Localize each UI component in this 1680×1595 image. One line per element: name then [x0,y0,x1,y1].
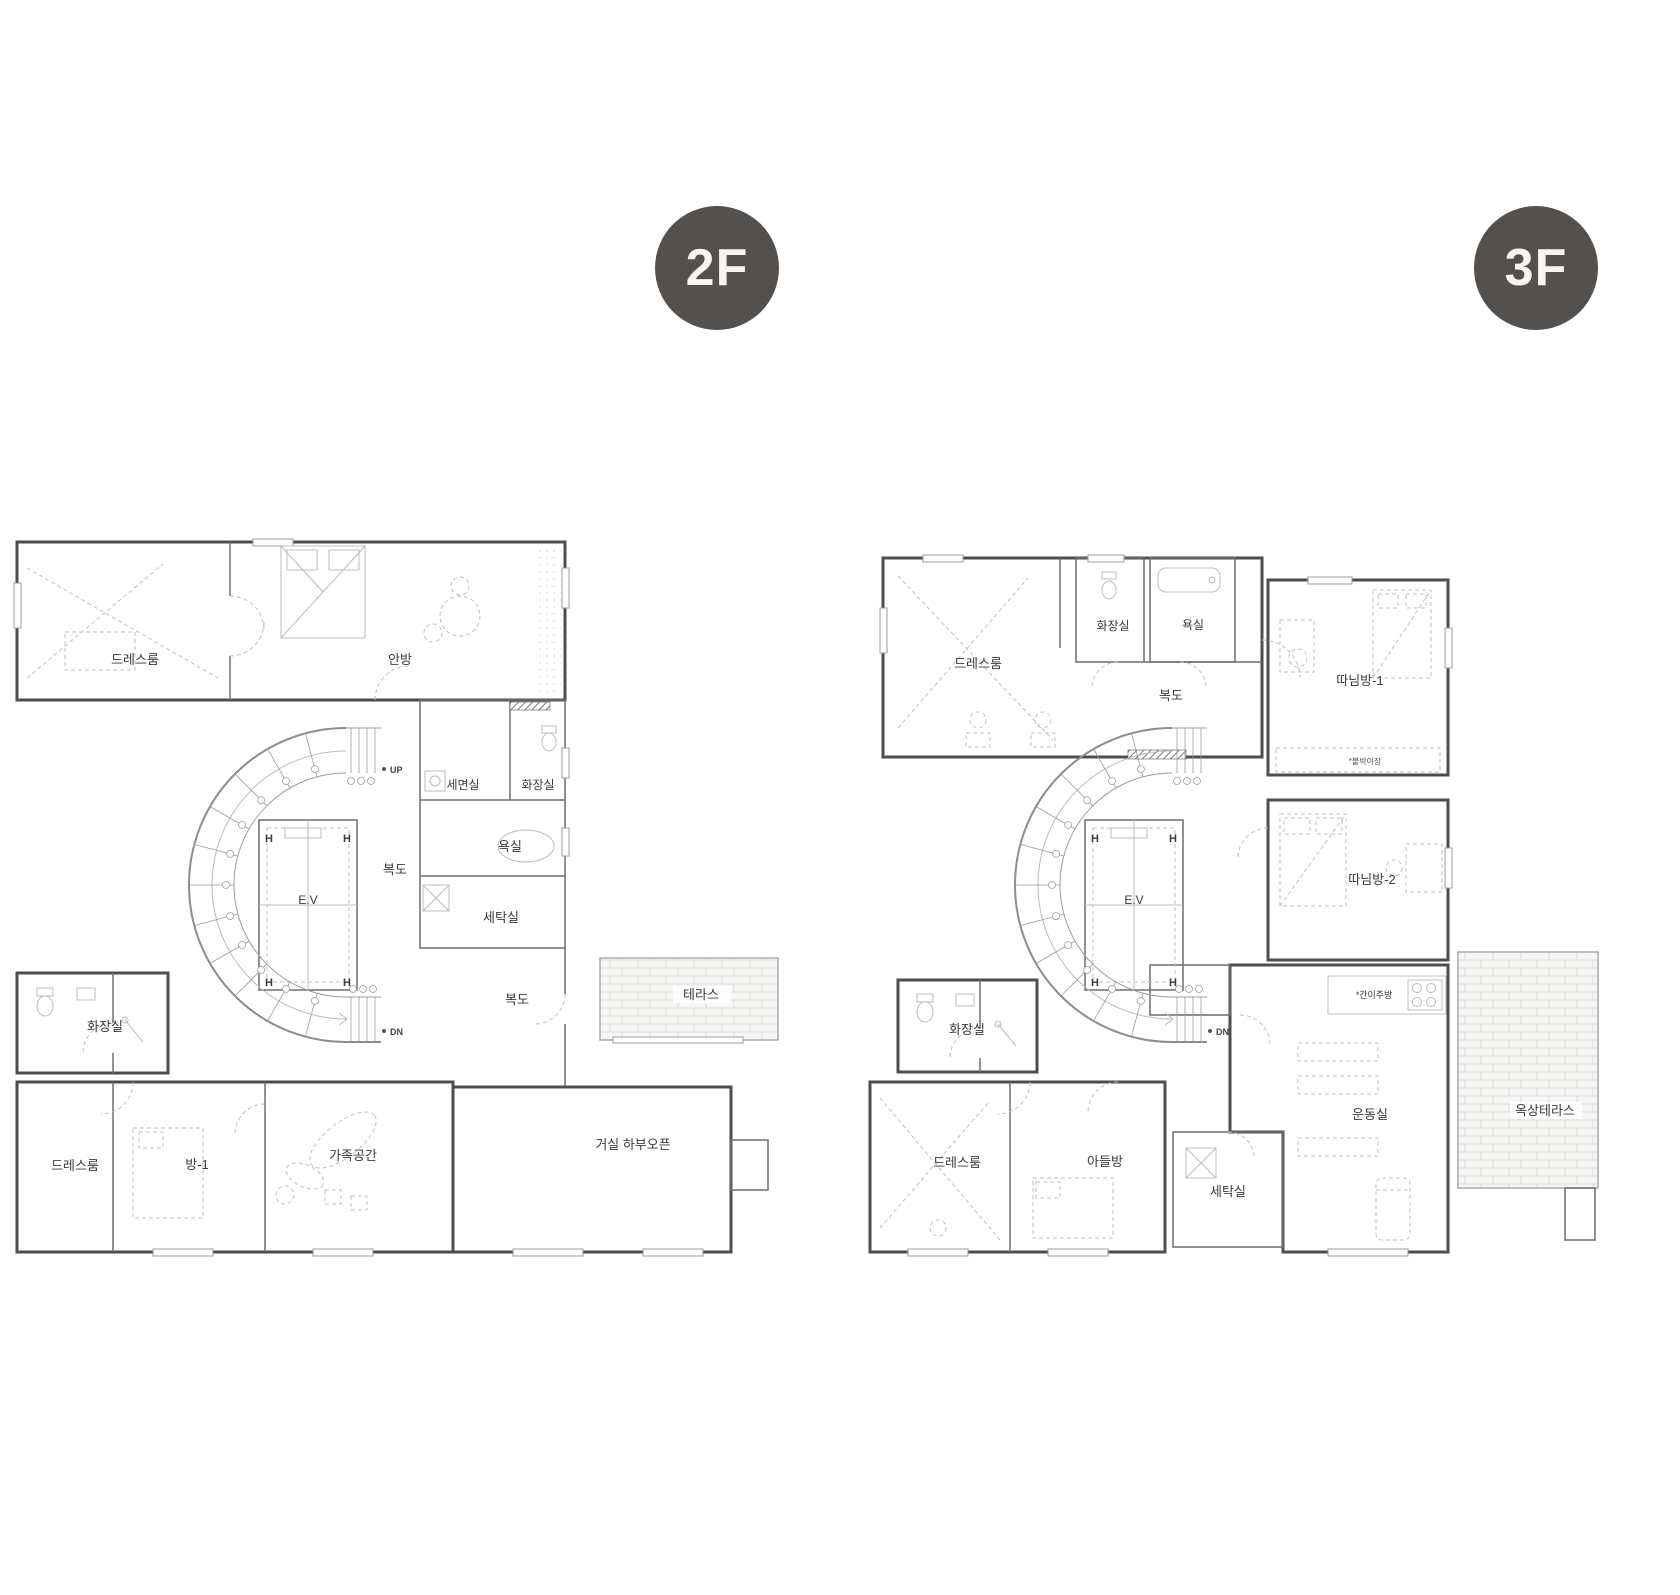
bed-glyph [1280,814,1346,906]
toilet-glyph [1102,572,1116,599]
toilet-glyph [542,726,556,751]
dn-marker-dot [1208,1029,1212,1033]
dotted-floor-strip [537,548,561,696]
room-label-family-space: 가족공간 [329,1148,377,1163]
floor-badge-3f-label: 3F [1505,238,1568,298]
room-label-living-open: 거실 하부오픈 [595,1137,670,1152]
bed-glyph [281,546,365,638]
room-label-corridor: 복도 [1159,688,1183,703]
up-marker: UP [390,765,403,775]
up-marker-dot [382,767,386,771]
room-label-son-room: 아들방 [1087,1154,1123,1169]
ev-corner-mark: H [1091,977,1099,989]
room-label-toilet-upper: 화장실 [521,778,554,792]
room-label-dressroom-lower: 드레스룸 [933,1155,981,1170]
floorplan-2f: H H H H [13,528,783,1258]
washer-glyph [423,885,449,911]
note-kitchenette: *간이주방 [1356,990,1393,1000]
dn-marker-dot [382,1029,386,1033]
door-arcs [83,596,565,1134]
sink-glyph [425,771,445,791]
ev-corner-mark: H [1169,833,1177,845]
floorplan-2f-drawing: H H H H [13,528,783,1258]
room-label-daughter-room2: 따님방-2 [1348,872,1395,887]
stove-glyph [1408,980,1442,1010]
table-glyph [424,577,480,642]
room-labels-2f: 드레스룸 안방 UP 세면실 화장실 욕실 복도 E.V 세탁실 복도 테라스 … [51,652,731,1173]
room-label-laundry: 세탁실 [1210,1184,1246,1199]
stair-step-numbers [223,766,377,1005]
room-label-bathroom: 욕실 [1182,618,1204,632]
note-builtin-closet: *붙박이장 [1349,756,1382,766]
room-label-daughter-room1: 따님방-1 [1336,673,1383,688]
room-label-exercise-room: 운동실 [1352,1107,1388,1122]
ev-corner-mark: H [265,833,273,845]
room-label-master-bedroom: 안방 [388,652,412,667]
bed-glyph [1373,590,1431,678]
shower-glyph [995,1021,1016,1046]
room-label-dressroom-upper: 드레스룸 [111,652,159,667]
room-label-elevator: E.V [298,893,317,907]
room-label-toilet-lower: 화장실 [949,1022,985,1037]
floorplan-3f-drawing: H H H H [828,528,1600,1258]
room-label-bathroom: 욕실 [498,839,522,854]
ev-corner-mark: H [343,833,351,845]
ev-corner-mark: H [1091,833,1099,845]
room-label-roof-terrace: 옥상테라스 [1515,1103,1575,1118]
exercise-equipment-glyphs [1298,1043,1410,1240]
floor-badge-2f-label: 2F [686,238,749,298]
room-label-toilet-upper: 화장실 [1096,619,1129,633]
room-label-corridor-mid: 복도 [383,862,407,877]
room-label-corridor-lower: 복도 [505,992,529,1007]
room-label-dressroom-upper: 드레스룸 [954,656,1002,671]
room-label-dressroom-lower: 드레스룸 [51,1158,99,1173]
floorplan-page: { "colors": { "badge_bg": "#54504d", "ba… [0,0,1680,1595]
floor-badge-2f: 2F [655,206,779,330]
room-label-toilet-lower: 화장실 [87,1019,123,1034]
toilet-glyph [917,994,933,1022]
floorplan-3f: H H H H [828,528,1600,1258]
room-label-elevator: E.V [1124,893,1143,907]
room-label-laundry: 세탁실 [483,910,519,925]
bed-glyph [930,1178,1113,1238]
roof-terrace-area [1458,952,1598,1240]
furniture-2f [27,546,556,1218]
dn-marker: DN [390,1027,403,1037]
room-label-terrace: 테라스 [683,987,719,1002]
toilet-glyph [37,988,53,1016]
washer-glyph [1186,1148,1216,1178]
sink-glyph [956,994,974,1006]
room-label-washroom: 세면실 [446,778,479,792]
bed-glyph [133,1128,203,1218]
dn-marker: DN [1216,1027,1229,1037]
stair-step-numbers [1049,766,1203,1005]
bathtub-glyph [1158,568,1220,592]
room-label-room1: 방-1 [185,1157,209,1172]
shower-glyph [122,1017,143,1042]
floor-badge-3f: 3F [1474,206,1598,330]
ev-corner-mark: H [265,977,273,989]
sink-glyph [77,988,95,1000]
